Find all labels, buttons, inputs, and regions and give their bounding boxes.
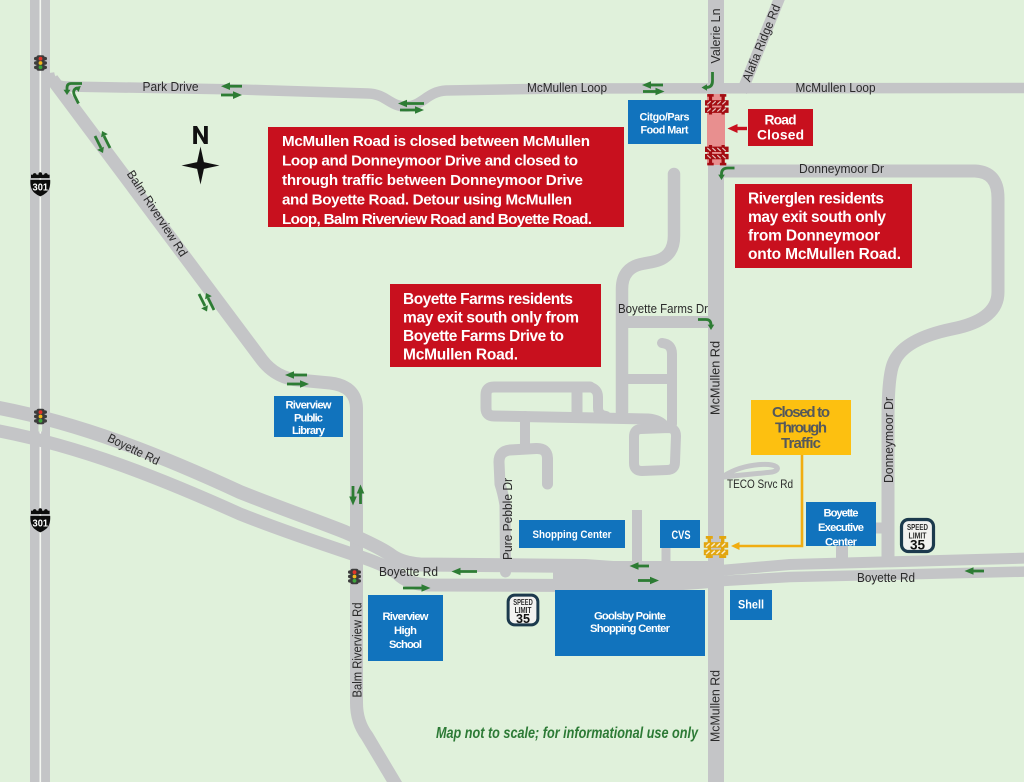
- svg-text:Riverview: Riverview: [286, 400, 332, 412]
- svg-text:Shell: Shell: [738, 600, 764, 612]
- svg-text:Boyette: Boyette: [824, 508, 859, 520]
- svg-text:McMullen Loop: McMullen Loop: [796, 81, 876, 95]
- svg-text:Boyette Farms Dr: Boyette Farms Dr: [618, 302, 708, 316]
- svg-text:Riverglen residents: Riverglen residents: [748, 191, 884, 208]
- svg-text:Park Drive: Park Drive: [143, 80, 199, 94]
- svg-text:Closed: Closed: [757, 128, 804, 143]
- svg-text:may exit south only: may exit south only: [748, 209, 886, 226]
- svg-text:Road: Road: [765, 113, 797, 128]
- svg-text:Map not to scale; for informat: Map not to scale; for informational use …: [436, 725, 699, 742]
- svg-text:may exit south only from: may exit south only from: [403, 310, 579, 327]
- svg-text:McMullen Road is closed betwee: McMullen Road is closed between McMullen: [282, 133, 590, 150]
- svg-text:and Boyette Road. Detour using: and Boyette Road. Detour using McMullen: [282, 192, 572, 209]
- svg-text:Pure Pebble Dr: Pure Pebble Dr: [501, 478, 515, 560]
- svg-text:Executive: Executive: [818, 522, 864, 534]
- svg-text:Boyette Rd: Boyette Rd: [379, 565, 438, 579]
- svg-text:through traffic between Donney: through traffic between Donneymoor Drive: [282, 172, 583, 189]
- svg-text:Boyette Rd: Boyette Rd: [857, 571, 915, 585]
- svg-text:from Donneymoor: from Donneymoor: [748, 228, 880, 245]
- svg-text:Shopping Center: Shopping Center: [533, 529, 612, 541]
- svg-text:McMullen Road.: McMullen Road.: [403, 347, 518, 364]
- svg-text:Public: Public: [294, 413, 323, 425]
- svg-text:Valerie Ln: Valerie Ln: [709, 8, 723, 63]
- svg-text:Center: Center: [825, 537, 858, 549]
- svg-text:School: School: [389, 639, 422, 651]
- svg-text:McMullen Loop: McMullen Loop: [527, 81, 607, 95]
- svg-text:Boyette Farms Drive to: Boyette Farms Drive to: [403, 328, 564, 345]
- svg-text:Donneymoor Dr: Donneymoor Dr: [799, 162, 884, 176]
- svg-text:Closed to: Closed to: [772, 404, 830, 421]
- svg-text:Loop and Donneymoor Drive and: Loop and Donneymoor Drive and closed to: [282, 153, 578, 170]
- svg-text:Donneymoor Dr: Donneymoor Dr: [882, 397, 896, 483]
- svg-text:onto McMullen Road.: onto McMullen Road.: [748, 246, 901, 263]
- svg-text:Library: Library: [292, 425, 326, 437]
- svg-text:Traffic: Traffic: [781, 435, 821, 452]
- svg-text:Loop, Balm Riverview Road and: Loop, Balm Riverview Road and Boyette Ro…: [282, 211, 592, 228]
- svg-text:McMullen Rd: McMullen Rd: [709, 341, 723, 415]
- svg-text:Riverview: Riverview: [383, 611, 429, 623]
- svg-text:Shopping Center: Shopping Center: [590, 623, 671, 635]
- svg-text:Boyette Farms residents: Boyette Farms residents: [403, 291, 573, 308]
- svg-text:High: High: [394, 625, 417, 637]
- svg-text:McMullen Rd: McMullen Rd: [709, 670, 723, 742]
- svg-text:Citgo/Pars: Citgo/Pars: [640, 112, 690, 124]
- svg-text:Through: Through: [775, 420, 827, 437]
- svg-text:CVS: CVS: [672, 528, 691, 542]
- svg-text:Goolsby Pointe: Goolsby Pointe: [594, 611, 666, 623]
- svg-text:TECO Srvc Rd: TECO Srvc Rd: [727, 477, 793, 491]
- svg-text:Food Mart: Food Mart: [641, 125, 689, 137]
- svg-text:Balm Riverview Rd: Balm Riverview Rd: [351, 602, 365, 697]
